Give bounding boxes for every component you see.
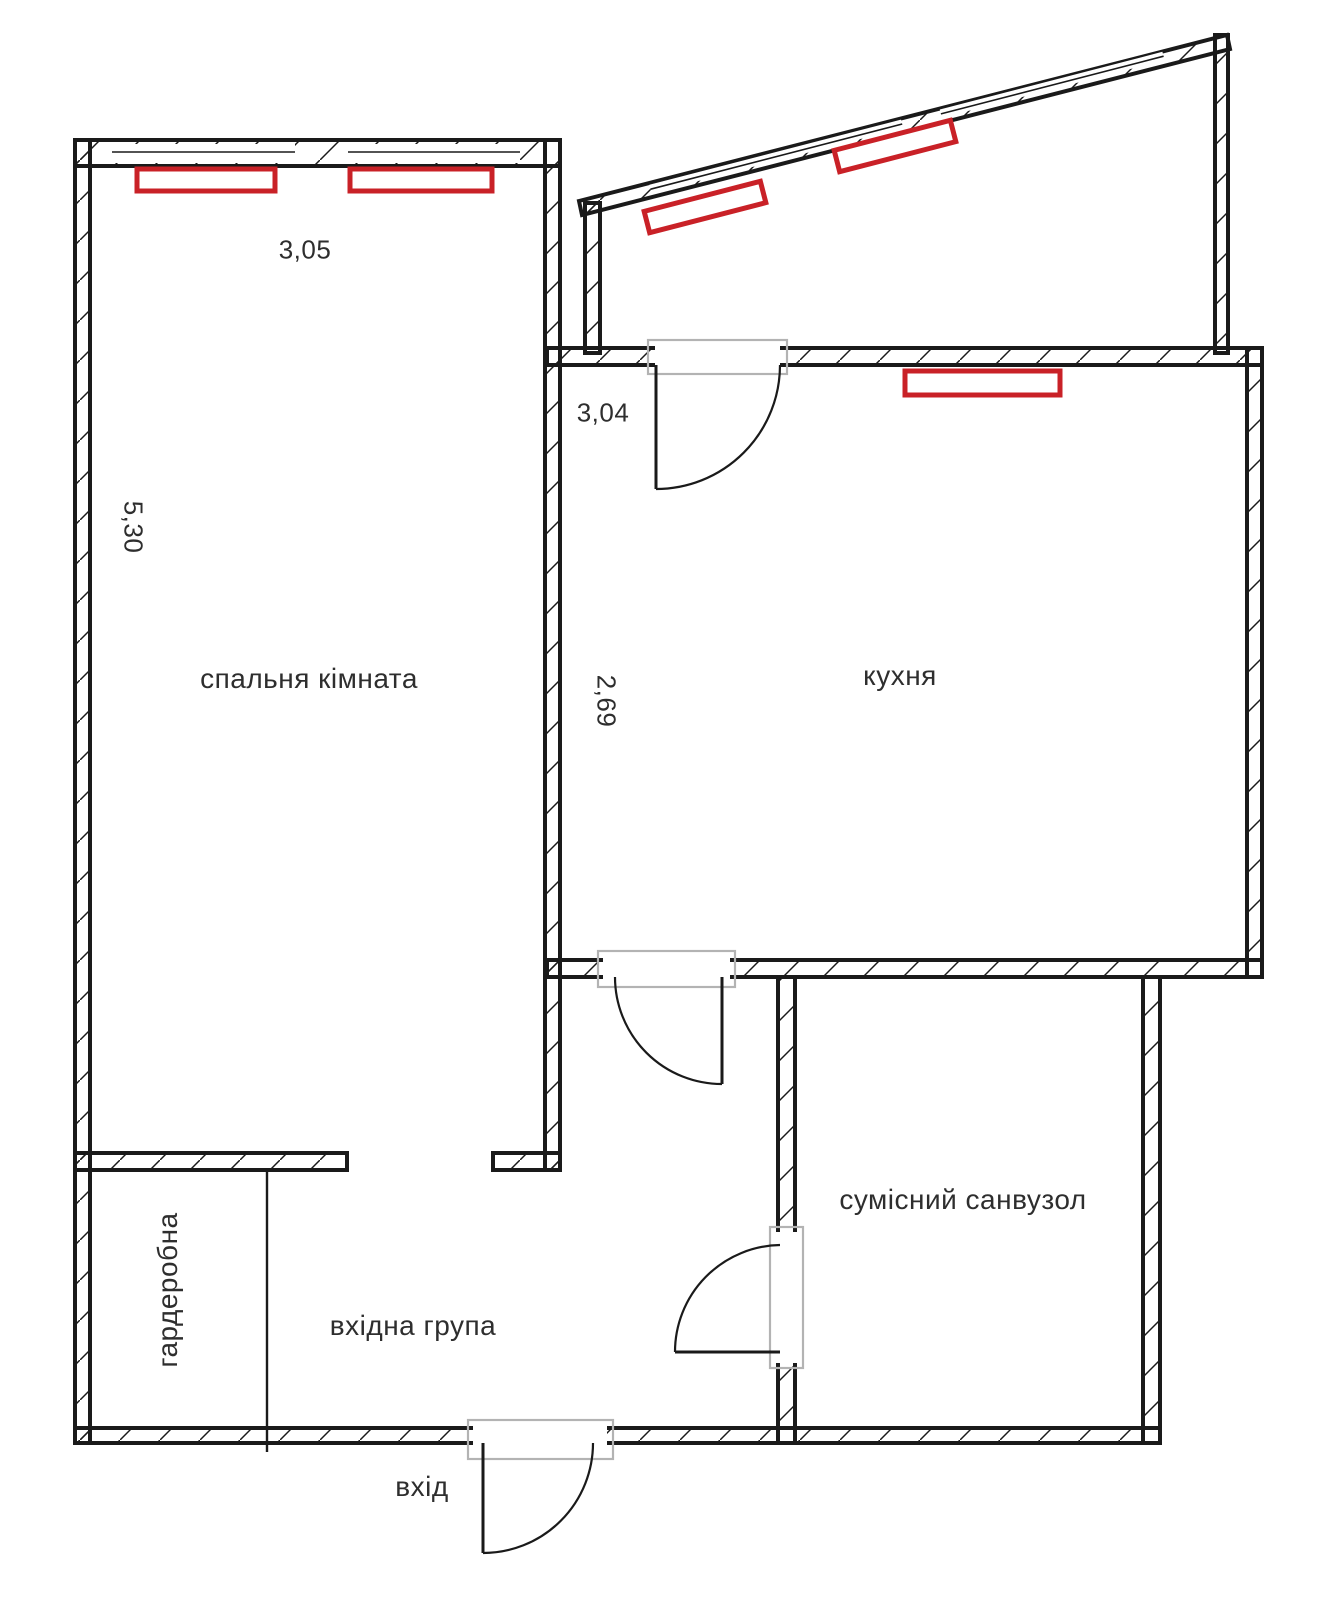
kitchen-width-dimension: 3,04 xyxy=(577,398,630,429)
bedroom-bottom-wall-left xyxy=(75,1153,347,1170)
bedroom-length-dimension: 5,30 xyxy=(118,501,149,554)
kitchen-label: кухня xyxy=(863,660,937,692)
bedroom-window xyxy=(112,144,295,163)
radiator xyxy=(137,169,275,191)
kitchen-right-wall xyxy=(1247,348,1262,977)
balcony-door-opening xyxy=(655,344,780,369)
kitchen-top-wall xyxy=(547,348,1262,365)
bedroom-width-dimension: 3,05 xyxy=(279,235,332,266)
kitchen-depth-dimension: 2,69 xyxy=(591,675,622,728)
kitchen-door-arc xyxy=(615,977,722,1084)
bedroom-right-wall xyxy=(545,140,560,1170)
bedroom-label: спальня кімната xyxy=(200,663,418,695)
radiator xyxy=(350,169,492,191)
radiator xyxy=(905,371,1060,395)
bedroom-window xyxy=(348,144,520,163)
entrance-door-opening xyxy=(473,1424,607,1447)
balcony-left-wall xyxy=(585,203,600,353)
bathroom-left-wall xyxy=(778,977,795,1443)
bathroom-right-wall xyxy=(1143,977,1160,1443)
hall-label: вхідна група xyxy=(330,1310,496,1342)
balcony-right-wall xyxy=(1215,35,1228,353)
bathroom-door-opening xyxy=(774,1232,799,1363)
left-exterior-wall xyxy=(75,140,90,1443)
bedroom-bottom-wall-right xyxy=(493,1153,560,1170)
floor-plan-drawing xyxy=(0,0,1323,1600)
wardrobe-label: гардеробна xyxy=(152,1212,184,1367)
bathroom-label: сумісний санвузол xyxy=(839,1184,1086,1216)
bottom-exterior-wall xyxy=(75,1428,1160,1443)
bathroom-door-arc xyxy=(675,1245,780,1352)
balcony-door-arc xyxy=(656,365,780,489)
balcony-window-glass-line xyxy=(941,56,1164,114)
kitchen-door-opening xyxy=(603,956,730,981)
entrance-label: вхід xyxy=(395,1471,448,1503)
floor-plan: 3,05 5,30 спальня кімната 3,04 2,69 кухн… xyxy=(0,0,1323,1600)
